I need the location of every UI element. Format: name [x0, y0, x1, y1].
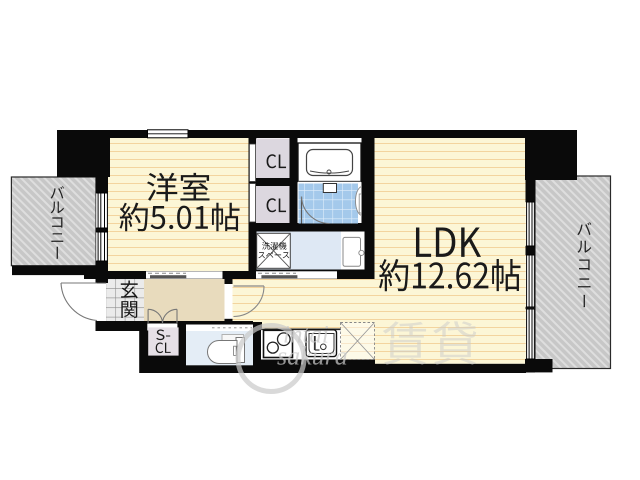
svg-text:sakura: sakura — [277, 342, 348, 371]
